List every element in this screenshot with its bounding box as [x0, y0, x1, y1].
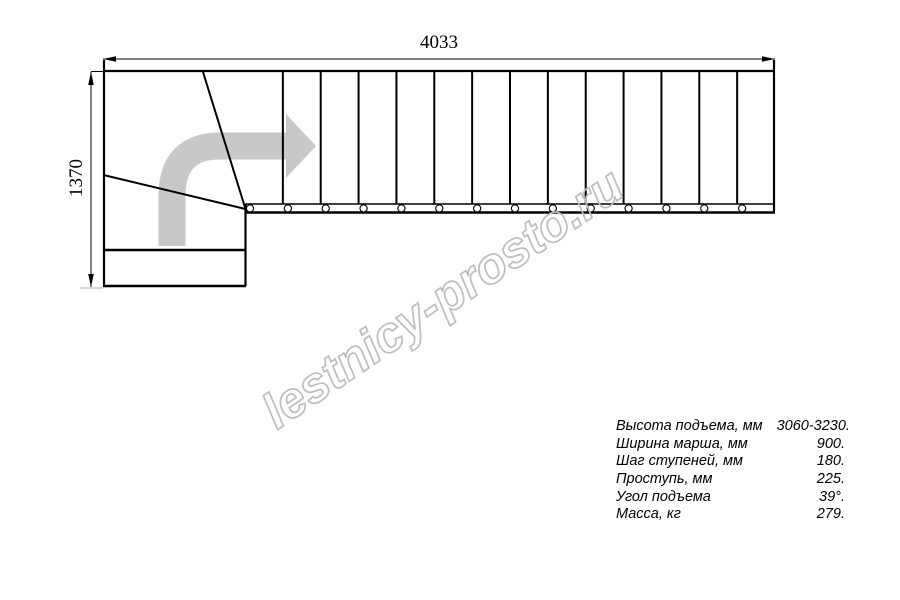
- spec-row: Угол подъема 39°.: [616, 489, 845, 507]
- spec-row: Высота подъема, мм 3060-3230.: [616, 418, 845, 436]
- bolt-circle: [246, 205, 253, 212]
- spec-row: Ширина марша, мм 900.: [616, 436, 845, 454]
- direction-arrow: [172, 114, 316, 246]
- stair-outline: [103, 60, 775, 287]
- dimension-arrow-bottom: [88, 274, 94, 287]
- spec-label: Высота подъема, мм: [616, 418, 763, 436]
- spec-value: 3060-3230.: [777, 418, 850, 436]
- spec-value: 39°.: [819, 489, 845, 507]
- bolt-circle: [322, 205, 329, 212]
- bolt-circle: [474, 205, 481, 212]
- spec-value: 900.: [817, 436, 845, 454]
- bolt-circle: [360, 205, 367, 212]
- spec-label: Шаг ступеней, мм: [616, 453, 743, 471]
- spec-value: 225.: [817, 471, 845, 489]
- stair-drawing-canvas: lestnicy-prosto.ru 4033 1370 Высота подъ…: [0, 0, 900, 600]
- specs-table: Высота подъема, мм 3060-3230. Ширина мар…: [616, 418, 845, 524]
- spec-label: Угол подъема: [616, 489, 711, 507]
- bolt-circle: [739, 205, 746, 212]
- dimension-height-label: 1370: [66, 138, 86, 218]
- spec-label: Проступь, мм: [616, 471, 712, 489]
- spec-row: Шаг ступеней, мм 180.: [616, 453, 845, 471]
- watermark-text: lestnicy-prosto.ru: [252, 157, 633, 440]
- spec-value: 279.: [817, 506, 845, 524]
- bolt-circle: [511, 205, 518, 212]
- bolt-circle: [284, 205, 291, 212]
- spec-label: Ширина марша, мм: [616, 436, 748, 454]
- direction-arrow-head: [286, 114, 316, 178]
- spec-row: Масса, кг 279.: [616, 506, 845, 524]
- dimension-arrow-top: [88, 72, 94, 85]
- bolt-circle: [436, 205, 443, 212]
- spec-label: Масса, кг: [616, 506, 681, 524]
- spec-row: Проступь, мм 225.: [616, 471, 845, 489]
- spec-value: 180.: [817, 453, 845, 471]
- tread-lines: [283, 72, 737, 204]
- bolt-circle: [663, 205, 670, 212]
- bolt-circle: [398, 205, 405, 212]
- bolt-circle: [701, 205, 708, 212]
- stringer-bolts: [246, 205, 745, 212]
- dimension-width-label: 4033: [399, 32, 479, 54]
